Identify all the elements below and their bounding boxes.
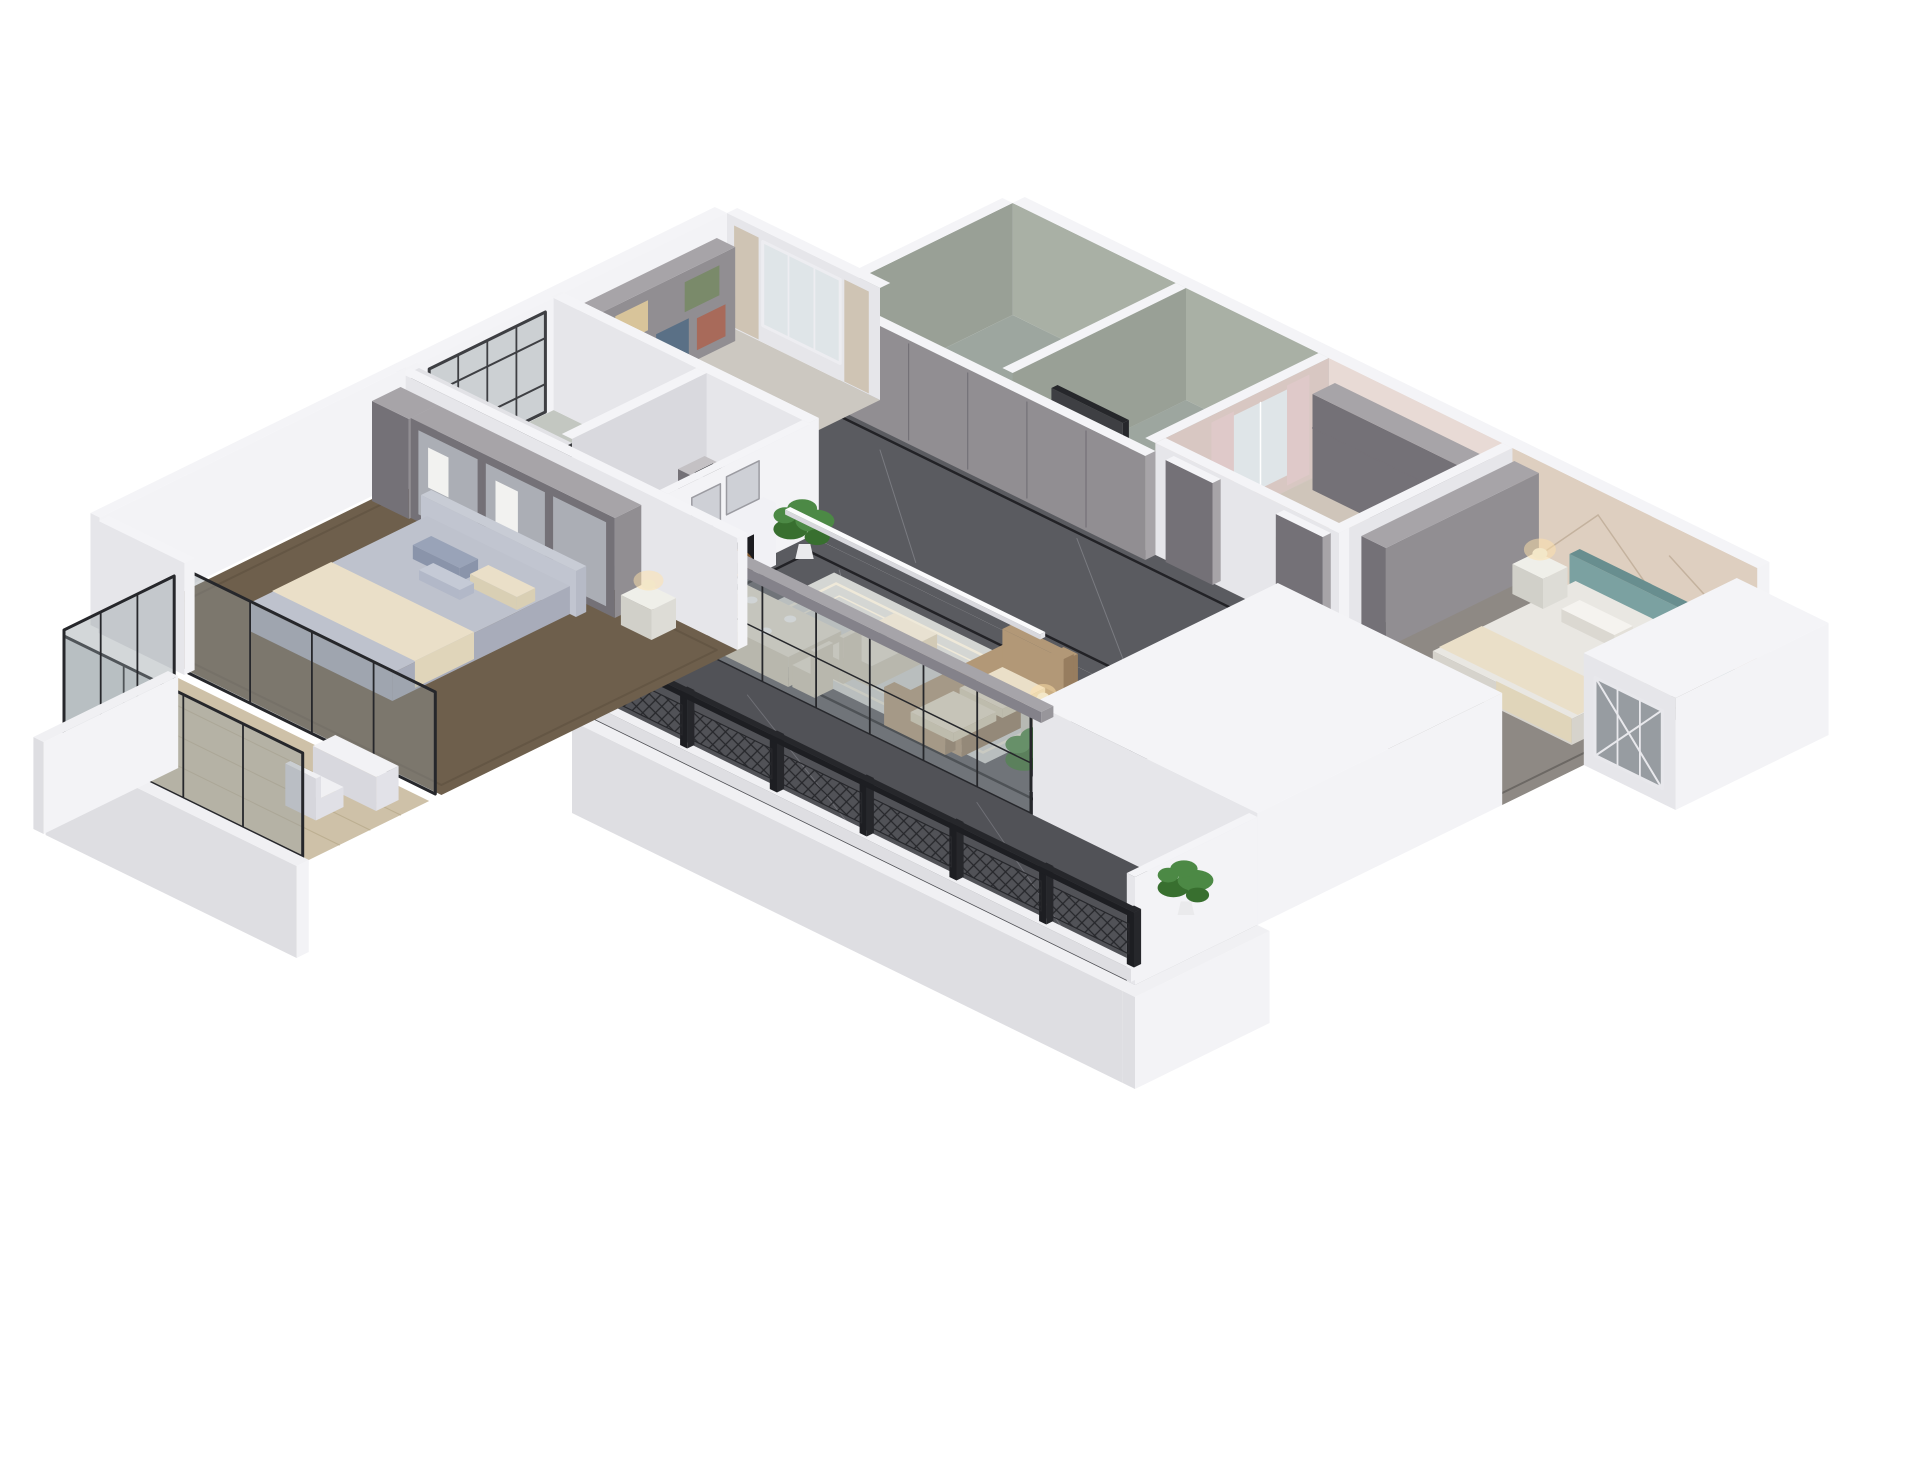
study-curtain-2 bbox=[844, 280, 869, 394]
hall-door-side bbox=[1213, 479, 1221, 585]
balcony-plant-leaves-4 bbox=[1158, 868, 1179, 883]
study-curtain bbox=[734, 226, 759, 340]
nightstand-lamp bbox=[1532, 548, 1547, 559]
isometric-apartment-scene bbox=[0, 0, 1920, 1468]
master-plinth-side bbox=[297, 860, 309, 958]
master-north-wall-side bbox=[737, 533, 747, 650]
master-corner-cabinet-front bbox=[372, 401, 409, 519]
partition-west-wall-side bbox=[184, 558, 194, 675]
hall-wardrobe-cabinets-side bbox=[1145, 451, 1155, 560]
master-headboard-side bbox=[576, 566, 586, 617]
scene-layer bbox=[33, 197, 1828, 1089]
desk-chair-back-side bbox=[316, 776, 321, 821]
floorplan-render-canvas bbox=[0, 0, 1920, 1468]
master-plinth-side-front bbox=[33, 737, 43, 834]
master-lamp bbox=[642, 580, 656, 590]
balcony-plant-leaves-3 bbox=[1186, 888, 1209, 903]
balcony-plinth-east-front bbox=[1123, 991, 1135, 1089]
dressing-curtain bbox=[1287, 375, 1309, 486]
